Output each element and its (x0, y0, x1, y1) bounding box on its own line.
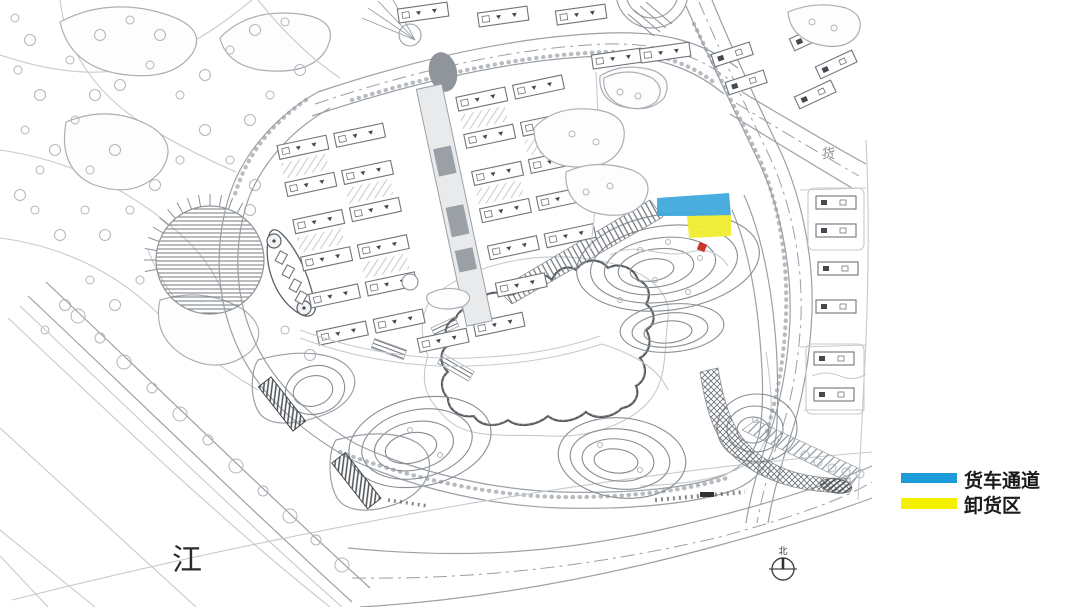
northeast-exit-road (730, 92, 866, 188)
checker-walkway (700, 368, 862, 495)
roundabout (616, 0, 688, 36)
legend-item-unloading-area: 卸货区 (901, 494, 1021, 517)
site-plan-page: 江 货 北 货车通道 卸货区 (0, 0, 1080, 607)
unloading-area-swatch (901, 498, 957, 509)
north-compass-icon: 北 (769, 546, 797, 580)
unloading-area-label: 卸货区 (964, 494, 1021, 517)
park-area (0, 0, 330, 390)
truck-channel-polygon (657, 193, 731, 216)
unloading-area-polygon (687, 215, 731, 238)
legend-item-truck-channel: 货车通道 (901, 469, 1040, 492)
site-plan-drawing: 江 货 北 货车通道 卸货区 (0, 0, 1080, 607)
truck-channel-label: 货车通道 (964, 469, 1040, 492)
small-garden-blob (427, 288, 470, 309)
north-label: 北 (778, 546, 787, 556)
truck-channel-area (657, 193, 731, 216)
river-label: 江 (172, 544, 202, 577)
plaza-circle (402, 274, 418, 290)
unloading-area (687, 215, 731, 238)
truck-channel-swatch (901, 473, 957, 483)
hatched-circle-plaza (144, 194, 264, 314)
road-name-label: 货 (822, 146, 835, 161)
legend: 货车通道 卸货区 (901, 469, 1040, 517)
